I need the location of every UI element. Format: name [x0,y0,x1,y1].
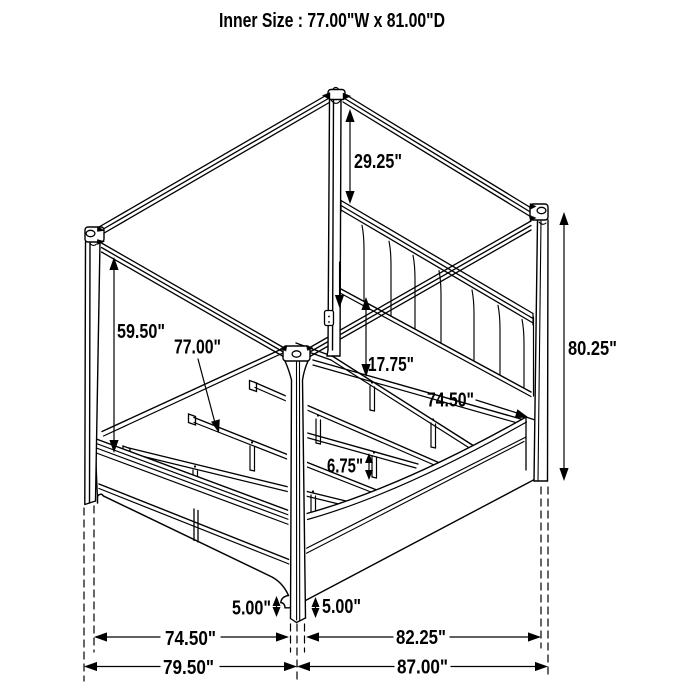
svg-text:82.25": 82.25" [396,626,446,649]
svg-text:74.50": 74.50" [165,627,216,650]
svg-text:87.00": 87.00" [397,656,448,679]
svg-text:29.25": 29.25" [354,150,402,173]
svg-text:17.75": 17.75" [368,353,414,376]
svg-text:6.75": 6.75" [327,455,363,478]
svg-text:80.25": 80.25" [568,337,617,360]
svg-text:5.00": 5.00" [322,595,361,618]
svg-text:59.50": 59.50" [117,320,165,343]
svg-text:79.50": 79.50" [163,656,214,679]
svg-text:Inner Size : 77.00"W x 81.00"D: Inner Size : 77.00"W x 81.00"D [219,9,445,32]
svg-text:77.00": 77.00" [174,336,221,359]
svg-text:74.50": 74.50" [427,389,474,412]
svg-text:5.00": 5.00" [232,597,271,620]
